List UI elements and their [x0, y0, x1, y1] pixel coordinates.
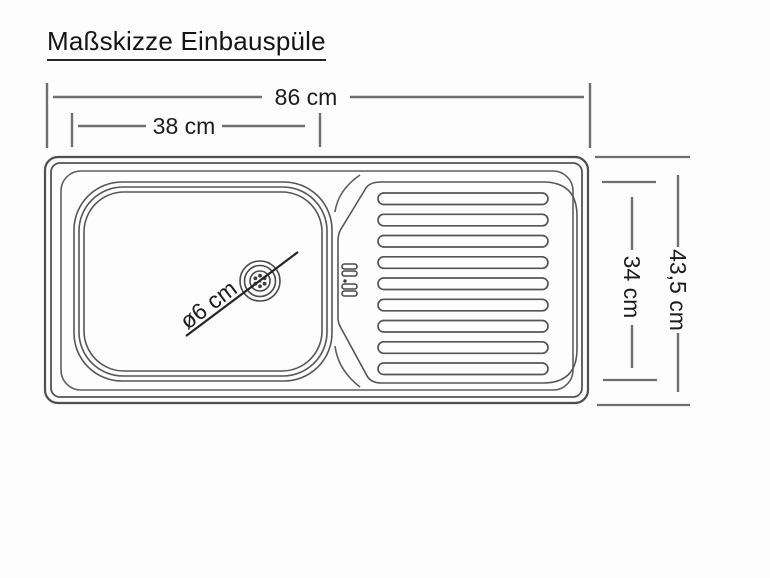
- rib: [378, 193, 548, 205]
- mark-bar: [342, 291, 357, 296]
- waist-curve: [335, 346, 360, 387]
- tap-hole-mark: [342, 264, 357, 296]
- basin: [74, 182, 332, 381]
- dimension-drain-diameter: ø6 cm: [175, 252, 298, 336]
- mark-bar: [342, 264, 357, 269]
- rib: [378, 363, 548, 375]
- dimension-basin-width: 38 cm: [72, 113, 320, 147]
- waist-curve: [335, 175, 360, 212]
- rib: [378, 257, 548, 269]
- mark-bar: [342, 271, 357, 276]
- overall-depth-label: 43,5 cm: [665, 249, 691, 331]
- basin-rim-outer: [74, 182, 332, 381]
- mark-dot: [343, 279, 346, 282]
- basin-rim-inner: [84, 192, 322, 371]
- basin-rim-middle: [79, 187, 327, 376]
- overall-width-label: 86 cm: [275, 84, 338, 110]
- drainboard: [338, 182, 577, 383]
- rib: [378, 236, 548, 248]
- drainer-depth-label: 34 cm: [619, 256, 645, 319]
- drainboard-ribs: [378, 193, 548, 375]
- drain-diameter-label: ø6 cm: [175, 275, 242, 334]
- rib: [378, 342, 548, 354]
- rib: [378, 299, 548, 311]
- mark-bar: [342, 284, 357, 289]
- rib: [378, 214, 548, 226]
- rib: [378, 321, 548, 333]
- rib: [378, 278, 548, 290]
- sink-rim-inner-edge: [51, 163, 582, 397]
- measurement-sketch-page: Maßskizze Einbauspüle 86 cm 38 cm 43,5 c…: [0, 0, 770, 578]
- basin-width-label: 38 cm: [153, 113, 216, 139]
- dimension-drainer-depth: 34 cm: [602, 182, 657, 380]
- sink-dimension-drawing: 86 cm 38 cm 43,5 cm 34 cm: [0, 0, 770, 578]
- dimension-overall-width: 86 cm: [47, 83, 590, 148]
